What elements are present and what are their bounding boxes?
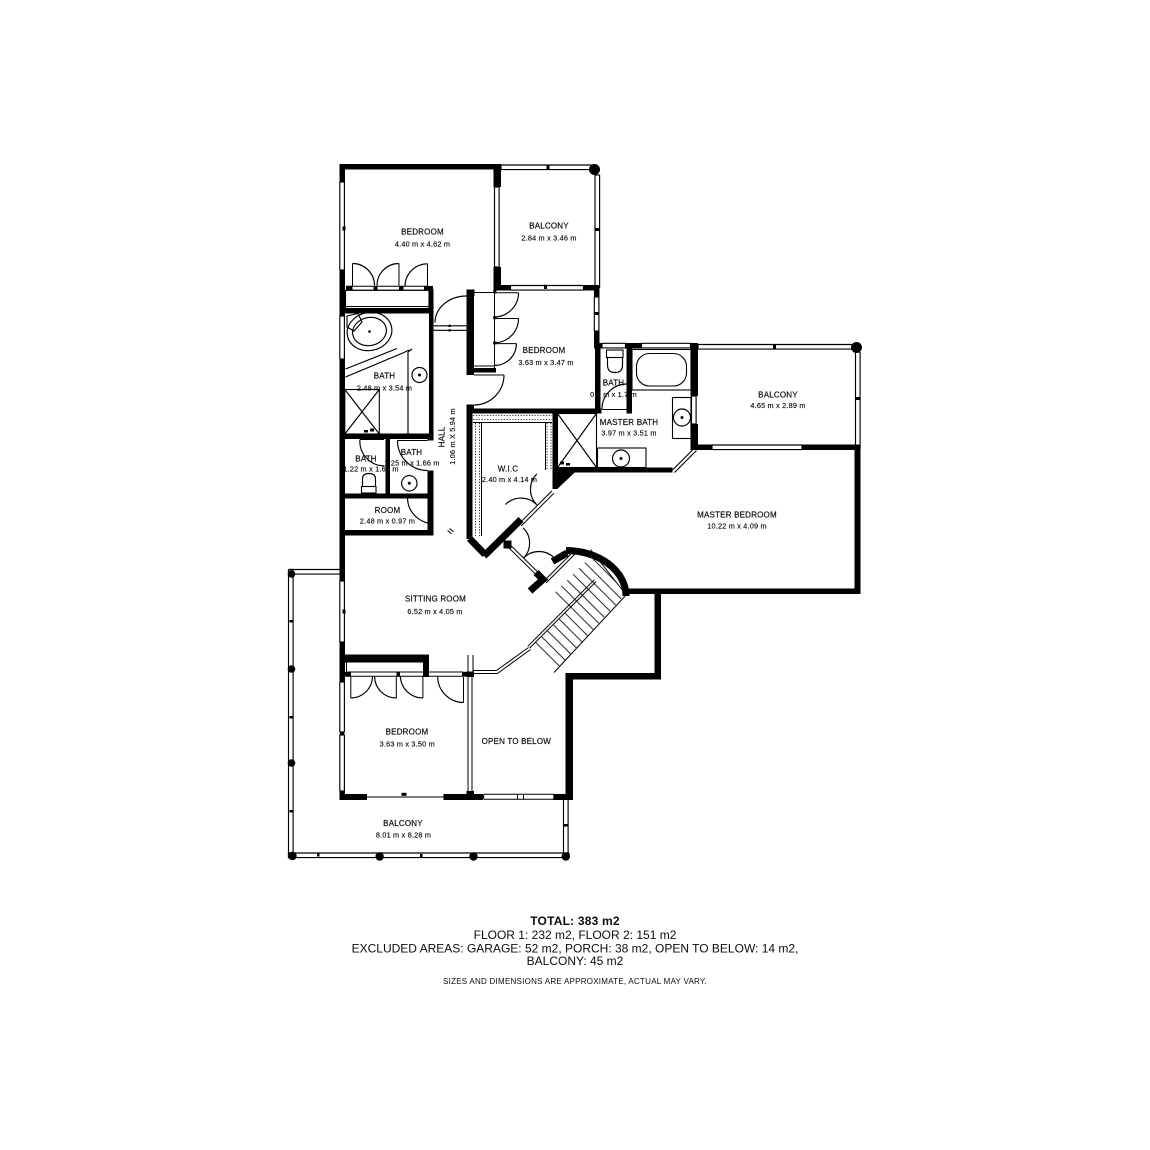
svg-text:4.40 m x 4.62 m: 4.40 m x 4.62 m: [395, 240, 450, 249]
svg-text:1.06 m X 5.94 m: 1.06 m X 5.94 m: [448, 408, 457, 465]
svg-text:HALL: HALL: [438, 426, 447, 447]
svg-text:1.25 m x 1.66 m: 1.25 m x 1.66 m: [384, 459, 439, 468]
svg-text:BALCONY: BALCONY: [758, 391, 798, 400]
svg-text:TOTAL: 383 m2: TOTAL: 383 m2: [530, 914, 620, 928]
svg-text:2.48 m x 3.54 m: 2.48 m x 3.54 m: [357, 384, 412, 393]
svg-text:BATH: BATH: [374, 372, 396, 381]
svg-text:2.48 m x 0.97 m: 2.48 m x 0.97 m: [360, 517, 415, 526]
svg-text:BALCONY: BALCONY: [529, 222, 569, 231]
svg-text:6.52 m x 4.05 m: 6.52 m x 4.05 m: [407, 607, 462, 616]
svg-text:BATH: BATH: [355, 455, 377, 464]
svg-text:OPEN TO BELOW: OPEN TO BELOW: [482, 737, 552, 746]
svg-text:3.97 m x 3.51 m: 3.97 m x 3.51 m: [601, 429, 656, 438]
svg-text:BALCONY: BALCONY: [383, 819, 423, 828]
svg-text:0.8 m x 1.7 m: 0.8 m x 1.7 m: [590, 390, 637, 399]
svg-text:BALCONY: 45 m2: BALCONY: 45 m2: [527, 954, 624, 968]
svg-text:2.84 m x 3.46 m: 2.84 m x 3.46 m: [521, 234, 576, 243]
svg-text:ROOM: ROOM: [375, 506, 401, 515]
svg-text:10.22 m x 4.09 m: 10.22 m x 4.09 m: [707, 522, 767, 531]
svg-text:2.40 m x 4.14 m: 2.40 m x 4.14 m: [482, 475, 537, 484]
svg-text:MASTER BATH: MASTER BATH: [600, 418, 659, 427]
svg-text:BATH: BATH: [603, 379, 625, 388]
svg-text:SIZES AND DIMENSIONS ARE APPRO: SIZES AND DIMENSIONS ARE APPROXIMATE, AC…: [443, 977, 707, 986]
svg-text:FLOOR 1: 232 m2, FLOOR 2: 151: FLOOR 1: 232 m2, FLOOR 2: 151 m2: [474, 928, 677, 942]
svg-text:BEDROOM: BEDROOM: [523, 346, 566, 355]
svg-text:MASTER BEDROOM: MASTER BEDROOM: [697, 511, 777, 520]
svg-text:8.01 m x 8.28 m: 8.01 m x 8.28 m: [376, 831, 431, 840]
svg-text:BATH: BATH: [401, 448, 423, 457]
svg-text:BEDROOM: BEDROOM: [386, 728, 429, 737]
svg-text:SITTING ROOM: SITTING ROOM: [405, 595, 466, 604]
svg-text:3.63 m x 3.47 m: 3.63 m x 3.47 m: [518, 358, 573, 367]
svg-text:W.I.C: W.I.C: [498, 465, 519, 474]
svg-text:4.65 m x 2.89 m: 4.65 m x 2.89 m: [750, 401, 805, 410]
svg-text:3.63 m x 3.50 m: 3.63 m x 3.50 m: [380, 740, 435, 749]
svg-text:BEDROOM: BEDROOM: [401, 228, 444, 237]
